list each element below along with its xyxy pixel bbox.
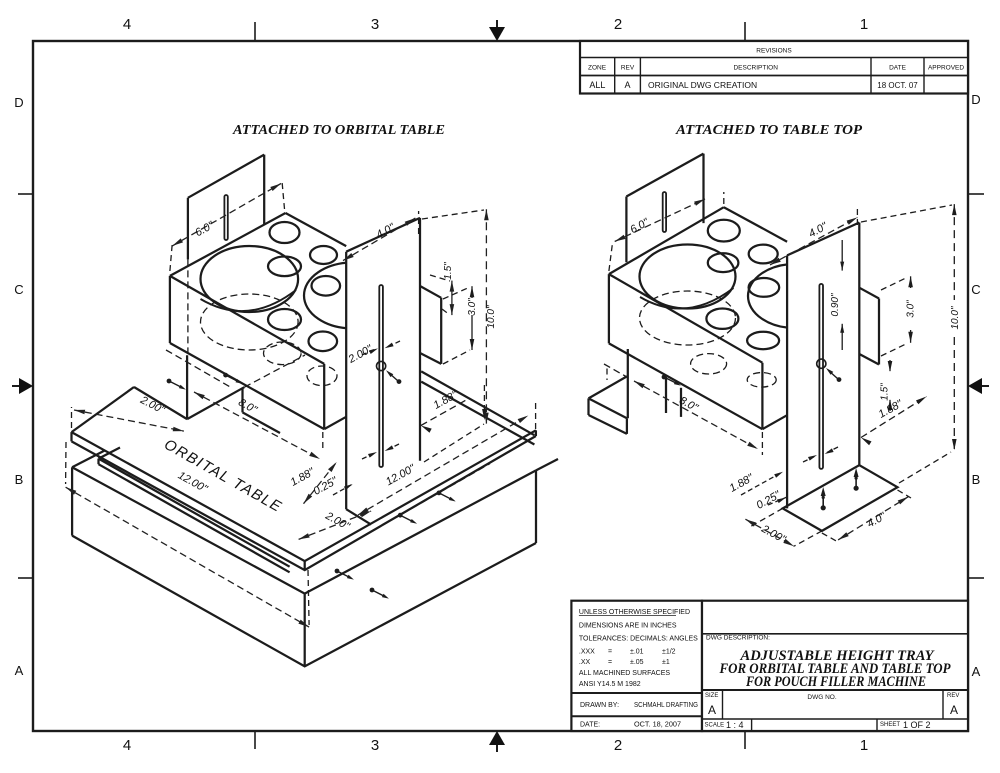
svg-text:4: 4 bbox=[123, 16, 131, 33]
svg-text:3: 3 bbox=[371, 737, 379, 754]
svg-text:C: C bbox=[971, 282, 980, 297]
svg-text:REV: REV bbox=[621, 65, 635, 72]
svg-text:ATTACHED TO ORBITAL TABLE: ATTACHED TO ORBITAL TABLE bbox=[232, 123, 445, 138]
svg-text:ALL MACHINED SURFACES: ALL MACHINED SURFACES bbox=[579, 670, 670, 677]
svg-text:A: A bbox=[15, 663, 24, 678]
svg-text:1 : 4: 1 : 4 bbox=[726, 720, 744, 730]
svg-text:±.01: ±.01 bbox=[630, 649, 644, 656]
svg-text:1: 1 bbox=[860, 16, 868, 33]
svg-text:DATE:: DATE: bbox=[580, 722, 600, 729]
svg-text:±1/2: ±1/2 bbox=[662, 649, 676, 656]
svg-text:DATE: DATE bbox=[889, 65, 907, 72]
svg-text:UNLESS OTHERWISE SPECIFIED: UNLESS OTHERWISE SPECIFIED bbox=[579, 609, 690, 616]
svg-text:C: C bbox=[14, 282, 23, 297]
svg-text:1: 1 bbox=[860, 737, 868, 754]
svg-text:ALL: ALL bbox=[589, 80, 605, 90]
svg-text:DESCRIPTION: DESCRIPTION bbox=[733, 65, 778, 72]
svg-text:DWG NO.: DWG NO. bbox=[807, 694, 836, 701]
svg-text:10.0": 10.0" bbox=[486, 305, 497, 328]
svg-text:18 OCT. 07: 18 OCT. 07 bbox=[877, 81, 918, 90]
svg-text:3.0": 3.0" bbox=[467, 298, 478, 316]
svg-text:A: A bbox=[972, 664, 981, 679]
svg-text:DIMENSIONS ARE IN INCHES: DIMENSIONS ARE IN INCHES bbox=[579, 623, 677, 630]
svg-text:D: D bbox=[971, 92, 980, 107]
svg-text:DRAWN BY:: DRAWN BY: bbox=[580, 702, 619, 709]
svg-text:REVISIONS: REVISIONS bbox=[756, 48, 792, 55]
svg-text:ANSI Y14.5 M 1982: ANSI Y14.5 M 1982 bbox=[579, 681, 641, 688]
svg-text:4: 4 bbox=[123, 737, 131, 754]
svg-text:TOLERANCES: DECIMALS: ANGLES: TOLERANCES: DECIMALS: ANGLES bbox=[579, 636, 698, 643]
svg-text:ZONE: ZONE bbox=[588, 65, 607, 72]
svg-text:A: A bbox=[950, 703, 958, 717]
svg-text:ORIGINAL DWG CREATION: ORIGINAL DWG CREATION bbox=[648, 80, 757, 90]
svg-text:D: D bbox=[14, 95, 23, 110]
svg-text:B: B bbox=[15, 472, 24, 487]
svg-text:=: = bbox=[608, 649, 612, 656]
svg-text:0.90": 0.90" bbox=[830, 293, 841, 316]
svg-text:A: A bbox=[624, 80, 630, 90]
svg-text:A: A bbox=[708, 703, 716, 717]
svg-text:SCHMAHL DRAFTING: SCHMAHL DRAFTING bbox=[634, 702, 698, 709]
svg-text:SHEET: SHEET bbox=[880, 722, 900, 728]
svg-text:APPROVED: APPROVED bbox=[928, 65, 964, 72]
svg-text:FOR POUCH FILLER MACHINE: FOR POUCH FILLER MACHINE bbox=[745, 674, 926, 690]
svg-text:SCALE: SCALE bbox=[705, 723, 725, 729]
svg-text:3: 3 bbox=[371, 16, 379, 33]
svg-text:1 OF 2: 1 OF 2 bbox=[903, 720, 931, 730]
svg-text:3.0": 3.0" bbox=[906, 300, 917, 318]
svg-text:±.05: ±.05 bbox=[630, 659, 644, 666]
svg-text:B: B bbox=[972, 472, 981, 487]
svg-text:±1: ±1 bbox=[662, 659, 670, 666]
svg-text:ATTACHED TO TABLE TOP: ATTACHED TO TABLE TOP bbox=[675, 123, 863, 138]
svg-text:2: 2 bbox=[614, 737, 622, 754]
svg-text:SIZE: SIZE bbox=[705, 693, 718, 699]
svg-text:1.5": 1.5" bbox=[880, 383, 891, 401]
svg-text:REV: REV bbox=[947, 693, 959, 699]
svg-text:10.0": 10.0" bbox=[950, 306, 961, 329]
svg-text:2: 2 bbox=[614, 16, 622, 33]
svg-text:.XX: .XX bbox=[579, 659, 591, 666]
svg-text:1.5": 1.5" bbox=[443, 262, 454, 280]
svg-text:=: = bbox=[608, 659, 612, 666]
svg-text:OCT. 18, 2007: OCT. 18, 2007 bbox=[634, 722, 681, 729]
svg-text:.XXX: .XXX bbox=[579, 649, 595, 656]
svg-text:DWG DESCRIPTION:: DWG DESCRIPTION: bbox=[706, 635, 770, 642]
